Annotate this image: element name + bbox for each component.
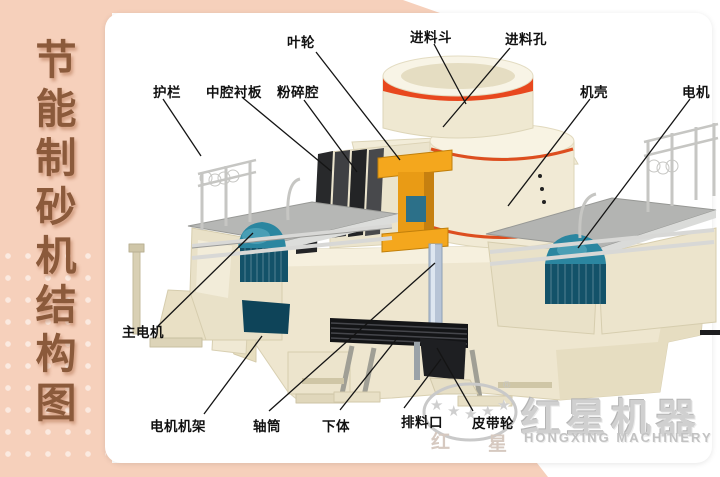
title-char: 制 — [0, 134, 112, 183]
sidebar-title-banner: 节能制砂机结构图 — [0, 0, 112, 477]
title-char: 能 — [0, 85, 112, 134]
title-char: 节 — [0, 36, 112, 85]
page: 节能制砂机结构图 — [0, 0, 720, 477]
page-title-vertical: 节能制砂机结构图 — [0, 36, 112, 428]
title-char: 机 — [0, 232, 112, 281]
title-char: 构 — [0, 330, 112, 379]
title-char: 结 — [0, 281, 112, 330]
diagram-panel — [105, 13, 712, 463]
top-ribbon — [0, 0, 440, 13]
title-char: 图 — [0, 379, 112, 428]
bottom-ribbon — [0, 463, 548, 477]
title-char: 砂 — [0, 183, 112, 232]
